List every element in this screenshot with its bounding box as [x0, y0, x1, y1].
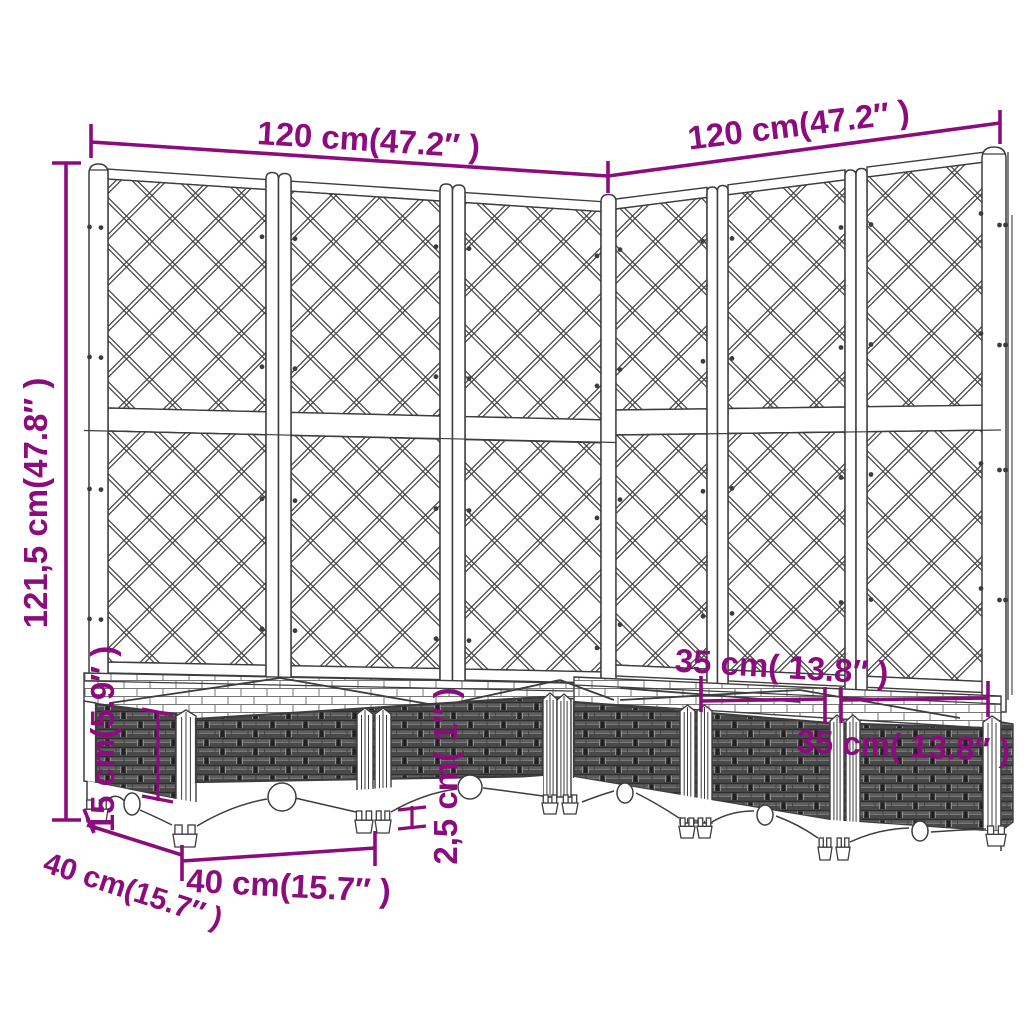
svg-text:121,5 cm(47.8″ ): 121,5 cm(47.8″ ) — [17, 378, 54, 629]
svg-text:2,5 cm( 1″ ): 2,5 cm( 1″ ) — [427, 687, 464, 864]
svg-text:15 cm(5.9″ ): 15 cm(5.9″ ) — [84, 646, 121, 832]
